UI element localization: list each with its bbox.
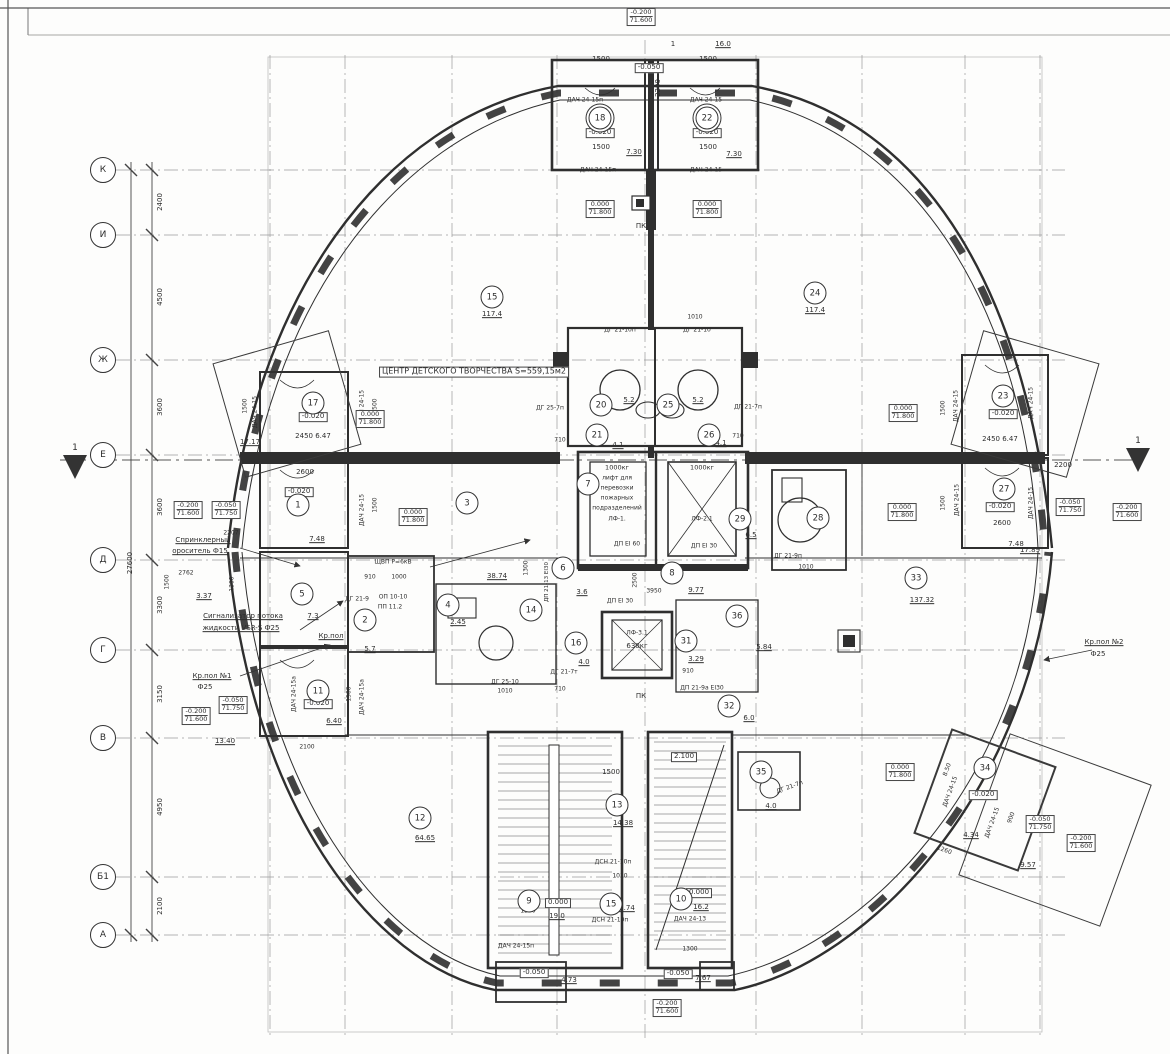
drawing-label: ДГ 21-7т <box>550 670 577 677</box>
drawing-label: ПК <box>636 693 646 701</box>
axis-span-dimension: 2400 <box>157 193 165 211</box>
elevation-relative: -0.200 <box>1116 504 1139 511</box>
drawing-label: ДСН 21-10п <box>595 860 632 867</box>
drawing-label: 1300 <box>682 947 697 954</box>
room-number: 31 <box>675 630 698 653</box>
drawing-label: 5.84 <box>756 644 772 652</box>
drawing-label: ДАЧ 24-15п <box>498 944 534 951</box>
drawing-label: 0.000 <box>545 898 571 908</box>
floor-plan-sheet: ЦЕНТР ДЕТСКОГО ТВОРЧЕСТВА S=559,15м21500… <box>0 0 1170 1054</box>
room-number: 26 <box>698 424 721 447</box>
elevation-absolute: 71.800 <box>696 209 719 217</box>
room-number: 2 <box>354 609 377 632</box>
drawing-label: ДАЧ 24-15а <box>360 679 367 715</box>
room-number: 12 <box>409 807 432 830</box>
elevation-mark: 0.00071.800 <box>356 410 385 428</box>
elevation-mark: -0.05071.750 <box>1056 498 1085 516</box>
elevation-absolute: 71.750 <box>1029 824 1052 832</box>
drawing-label: 1000кг <box>605 464 629 471</box>
grid-axis-bubble: К <box>90 157 116 183</box>
drawing-label: 2600 <box>993 520 1011 528</box>
drawing-label: лифт для <box>602 476 632 483</box>
drawing-label: 1010 <box>612 874 627 881</box>
drawing-label: 4.34 <box>963 832 979 840</box>
drawing-label: 910 <box>682 669 693 676</box>
drawing-label: 1500 <box>602 769 620 777</box>
drawing-label: ДП 21-9а ЕІ30 <box>680 686 724 693</box>
drawing-label: ЛФ-1. <box>608 517 626 524</box>
drawing-label: 910 <box>364 575 375 582</box>
room-number: 14 <box>520 599 543 622</box>
drawing-label: 4.0 <box>578 659 589 667</box>
grid-axis-bubble: Д <box>90 547 116 573</box>
drawing-label: 3.29 <box>688 656 704 664</box>
drawing-label: 5.2 <box>692 397 703 405</box>
drawing-label: 1500 <box>347 686 354 701</box>
drawing-label: 2100 <box>299 745 314 752</box>
elevation-mark: -0.05071.750 <box>1026 815 1055 833</box>
axis-span-dimension: 4500 <box>157 288 165 306</box>
drawing-label: 4.73 <box>561 977 577 985</box>
drawing-label: 14.38 <box>613 820 633 828</box>
room-number: 11 <box>307 680 330 703</box>
drawing-label: 1 <box>671 41 675 49</box>
drawing-label: 4.1 <box>612 442 623 450</box>
drawing-label: ДАЧ 24-15а <box>292 676 299 712</box>
elevation-absolute: 71.800 <box>892 413 915 421</box>
drawing-label: Спринклерный <box>175 537 230 545</box>
elevation-relative: -0.200 <box>177 502 200 509</box>
elevation-mark: -0.20071.600 <box>182 707 211 725</box>
drawing-label: 137.32 <box>910 597 935 605</box>
elevation-relative: -0.200 <box>1070 835 1093 842</box>
room-number: 8 <box>661 562 684 585</box>
room-number: 1 <box>287 494 310 517</box>
drawing-label: 2500 <box>649 117 656 132</box>
drawing-label: ПП 11.2 <box>378 605 402 612</box>
room-number: 28 <box>807 507 830 530</box>
axis-span-dimension: 3600 <box>157 498 165 516</box>
room-number: 36 <box>726 605 749 628</box>
drawing-label: 2450 6.47 <box>982 436 1018 444</box>
drawing-label: 7.67 <box>695 975 711 983</box>
drawing-label: ДП 21-13 ЕІ30 <box>544 562 550 602</box>
grid-axis-bubble: В <box>90 725 116 751</box>
drawing-label: ДГ 21-9 <box>345 597 369 604</box>
drawing-label: ДАЧ 24-15п <box>580 168 616 175</box>
drawing-label: 2.100 <box>671 752 697 762</box>
room-number: 3 <box>456 492 479 515</box>
drawing-label: -0.020 <box>693 128 722 138</box>
room-number: 18 <box>589 107 612 130</box>
drawing-label: ЩВП Р=6кВ <box>374 560 411 567</box>
elevation-relative: 0.000 <box>891 504 914 511</box>
drawing-label: ДП ЕІ 60 <box>614 542 640 549</box>
room-number: 20 <box>590 394 613 417</box>
drawing-label: 17.89 <box>1020 547 1040 555</box>
room-number: 23 <box>992 385 1015 408</box>
drawing-label: 1500 <box>699 56 717 64</box>
drawing-label: 7.30 <box>626 149 642 157</box>
elevation-absolute: 71.800 <box>589 209 612 217</box>
drawing-label: ДАЧ 24-15 <box>1029 387 1036 419</box>
drawing-label: ПК <box>636 223 646 231</box>
drawing-label: 1010 <box>497 689 512 696</box>
drawing-label: 2600 <box>296 469 314 477</box>
drawing-label: 1000 <box>391 575 406 582</box>
drawing-label: 64.65 <box>415 835 435 843</box>
drawing-label: ДГ 25-10 <box>491 680 519 687</box>
drawing-label: -0.020 <box>586 128 615 138</box>
left-vestibules <box>260 372 348 736</box>
drawing-label: 630кг <box>626 643 647 651</box>
elevation-absolute: 71.600 <box>1116 512 1139 520</box>
drawing-label: ДАЧ 24-15 <box>690 168 722 175</box>
room-number: 24 <box>804 282 827 305</box>
drawing-label: 2762 <box>178 571 193 578</box>
drawing-label: подразделений <box>592 506 642 513</box>
elevation-relative: 0.000 <box>359 411 382 418</box>
drawing-label: ДАЧ 24-15 <box>955 484 962 516</box>
elevation-relative: 0.000 <box>402 509 425 516</box>
room-number: 21 <box>586 424 609 447</box>
room-number: 15 <box>481 286 504 309</box>
drawing-label: 1500 <box>373 497 380 512</box>
drawing-label: -0.020 <box>989 409 1018 419</box>
elevation-absolute: 71.750 <box>215 510 238 518</box>
room-number: 32 <box>718 695 741 718</box>
drawing-label: Кр.пол <box>319 633 344 641</box>
drawing-label: -0.020 <box>986 502 1015 512</box>
drawing-label: 17.17 <box>240 439 260 447</box>
drawing-label: ДАЧ 24-13 <box>674 917 706 924</box>
drawing-label: 5.7 <box>364 646 375 654</box>
drawing-label: ДГ 21-7п <box>734 405 762 412</box>
drawing-label: 1300 <box>230 576 237 591</box>
drawing-label: ДГ 21-9п <box>774 554 802 561</box>
room-number: 16 <box>565 632 588 655</box>
drawing-label: 710 <box>554 438 565 445</box>
room-number: 10 <box>670 888 693 911</box>
drawing-label: ЛФ-3.1 <box>626 631 647 638</box>
drawing-label: 19.0 <box>549 913 565 921</box>
room-number: 29 <box>729 508 752 531</box>
drawing-label: 2200 <box>1054 462 1072 470</box>
room-number: 27 <box>993 478 1016 501</box>
room-number: 22 <box>696 107 719 130</box>
grid-axis-bubble: И <box>90 222 116 248</box>
drawing-label: 9.77 <box>688 587 704 595</box>
drawing-label: ороситель Ф15 <box>172 548 228 556</box>
drawing-label: 38.74 <box>487 573 507 581</box>
elevation-relative: -0.050 <box>1059 499 1082 506</box>
drawing-label: Кр.пол №1 <box>193 673 232 681</box>
drawing-label: 1500 <box>941 400 948 415</box>
drawing-label: -0.050 <box>635 63 664 73</box>
drawing-label: 7.30 <box>726 151 742 159</box>
drawing-label: 1500 <box>592 144 610 152</box>
drawing-label: 6.5 <box>745 532 756 540</box>
room-number: 17 <box>302 392 325 415</box>
drawing-label: 7.48 <box>309 536 325 544</box>
elevation-mark: -0.20071.600 <box>653 999 682 1017</box>
section-mark-number: 1 <box>1135 437 1141 447</box>
elevation-mark: 0.00071.800 <box>888 503 917 521</box>
room-number: 7 <box>577 473 600 496</box>
drawing-label: Ф25 <box>198 684 213 692</box>
drawing-label: -0.050 <box>520 968 549 978</box>
room-number: 4 <box>437 594 460 617</box>
drawing-label: 3.6 <box>576 589 587 597</box>
drawing-label: 2200 <box>655 79 663 97</box>
drawing-label: 16.0 <box>715 41 731 49</box>
elevation-relative: -0.200 <box>185 708 208 715</box>
drawing-label: пожарных <box>601 496 634 503</box>
grid-axis-bubble: Г <box>90 637 116 663</box>
drawing-label: 1010 <box>687 315 702 322</box>
drawing-label: ДАЧ 24-15 <box>1029 487 1036 519</box>
drawing-label: жидкости VSR-S Ф25 <box>203 625 280 633</box>
drawing-label: ДАЧ 24-15 <box>253 396 260 428</box>
drawing-label: 1010 <box>798 565 813 572</box>
room-number: 35 <box>750 761 773 784</box>
grid-axis-bubble: Е <box>90 442 116 468</box>
drawing-label: 3950 <box>646 589 661 596</box>
elevation-mark: -0.05071.750 <box>219 696 248 714</box>
axis-span-dimension: 4950 <box>157 798 165 816</box>
stairwell-right <box>648 732 732 968</box>
elevation-relative: -0.200 <box>656 1000 679 1007</box>
drawing-label: 2500 <box>633 572 640 587</box>
drawing-label: ДГ 25-7п <box>536 406 564 413</box>
grid-axis-bubble: Ж <box>90 347 116 373</box>
drawing-label: 7.3 <box>307 613 318 621</box>
tilted-blocks <box>213 331 1151 926</box>
elevation-absolute: 71.800 <box>891 512 914 520</box>
elevation-absolute: 71.600 <box>177 510 200 518</box>
drawing-label: 1000кг <box>690 464 714 471</box>
elevation-mark: 0.00071.800 <box>399 508 428 526</box>
drawing-label: 1500 <box>592 56 610 64</box>
elevation-mark: 0.00071.800 <box>886 763 915 781</box>
drawing-label: Кр.пол №2 <box>1085 639 1124 647</box>
drawing-label: -0.050 <box>664 969 693 979</box>
room-number: 6 <box>552 557 575 580</box>
axis-span-dimension: 2100 <box>157 897 165 915</box>
drawing-label: ЛФ-2.1 <box>691 517 712 524</box>
drawing-label: ДАЧ 24-15 <box>954 390 961 422</box>
room-number: 15 <box>600 893 623 916</box>
elevation-relative: -0.050 <box>222 697 245 704</box>
drawing-label: 117.4 <box>805 307 825 315</box>
elevation-mark: 0.00071.800 <box>889 404 918 422</box>
axis-span-dimension: 3300 <box>157 596 165 614</box>
elevation-relative: 0.000 <box>892 405 915 412</box>
elevation-absolute: 71.800 <box>402 517 425 525</box>
elevation-relative: -0.200 <box>630 9 653 16</box>
drawing-label: ДАЧ 24-15п <box>567 98 603 105</box>
drawing-label: 5.2 <box>623 397 634 405</box>
wc-cluster <box>553 328 758 446</box>
elevation-relative: -0.050 <box>215 502 238 509</box>
elevation-mark: -0.20071.600 <box>627 8 656 26</box>
drawing-label: 710 <box>554 687 565 694</box>
drawing-label: 2450 6.47 <box>295 433 331 441</box>
elevation-relative: 0.000 <box>889 764 912 771</box>
elevation-mark: 0.00071.800 <box>693 200 722 218</box>
elevation-absolute: 71.600 <box>656 1008 679 1016</box>
drawing-label: 1500 <box>243 398 250 413</box>
drawing-label: ДАЧ 24-15 <box>360 494 367 526</box>
elevation-mark: -0.05071.750 <box>212 501 241 519</box>
drawing-label: 16.2 <box>693 904 709 912</box>
elevation-absolute: 71.600 <box>185 716 208 724</box>
drawing-label: 2.45 <box>450 619 466 627</box>
elevation-relative: 0.000 <box>696 201 719 208</box>
drawing-label: 3.37 <box>196 593 212 601</box>
plan-title: ЦЕНТР ДЕТСКОГО ТВОРЧЕСТВА S=559,15м2 <box>379 367 569 378</box>
drawing-label: Ф25 <box>1091 651 1106 659</box>
drawing-label: ДГ 21-10п <box>604 328 636 335</box>
drawing-label: 117.4 <box>482 311 502 319</box>
drawing-label: 4.0 <box>765 803 776 811</box>
drawing-label: ДГ 21-10 <box>683 328 711 335</box>
elevation-mark: -0.20071.600 <box>1113 503 1142 521</box>
drawing-label: ДП ЕІ 30 <box>607 599 633 606</box>
elevation-absolute: 71.800 <box>359 419 382 427</box>
drawing-label: 1500 <box>165 574 172 589</box>
drawing-label: 1500 <box>699 144 717 152</box>
elevation-mark: 0.00071.800 <box>586 200 615 218</box>
room-number: 5 <box>291 583 314 606</box>
room-number: 25 <box>657 394 680 417</box>
section-mark-number: 1 <box>72 444 78 454</box>
drawing-label: Сигнализатор потока <box>203 613 283 621</box>
overall-dimension: 27600 <box>127 552 135 574</box>
elevation-relative: 0.000 <box>589 201 612 208</box>
elevation-relative: -0.050 <box>1029 816 1052 823</box>
grid-axis-bubble: Б1 <box>90 864 116 890</box>
grid-axis-bubble: А <box>90 922 116 948</box>
elevation-mark: -0.20071.600 <box>1067 834 1096 852</box>
drawing-label: 1500 <box>941 495 948 510</box>
drawing-label: 6.0 <box>743 715 754 723</box>
room-number: 9 <box>518 890 541 913</box>
drawing-label: 9.57 <box>1020 862 1036 870</box>
elevation-absolute: 71.600 <box>630 17 653 25</box>
drawing-label: -0.020 <box>969 790 998 800</box>
elevation-absolute: 71.800 <box>889 772 912 780</box>
drawing-label: 13.40 <box>215 738 235 746</box>
axis-span-dimension: 3600 <box>157 398 165 416</box>
room-number: 34 <box>974 757 997 780</box>
drawing-label: ОП 10-10 <box>379 595 408 602</box>
drawing-label: ДСН 21-10п <box>592 918 629 925</box>
elevation-mark: -0.20071.600 <box>174 501 203 519</box>
drawing-label: ДП ЕІ 30 <box>691 544 717 551</box>
drawing-label: перевозки <box>600 486 633 493</box>
elevation-absolute: 71.750 <box>222 705 245 713</box>
room-number: 13 <box>606 794 629 817</box>
room-number: 33 <box>905 567 928 590</box>
elevation-absolute: 71.750 <box>1059 507 1082 515</box>
elevation-absolute: 71.600 <box>1070 843 1093 851</box>
axis-span-dimension: 3150 <box>157 685 165 703</box>
drawing-label: 6.40 <box>326 718 342 726</box>
drawing-label: 710 <box>732 434 743 441</box>
drawing-label: ДАЧ 24-15 <box>690 98 722 105</box>
drawing-label: 1300 <box>524 560 531 575</box>
